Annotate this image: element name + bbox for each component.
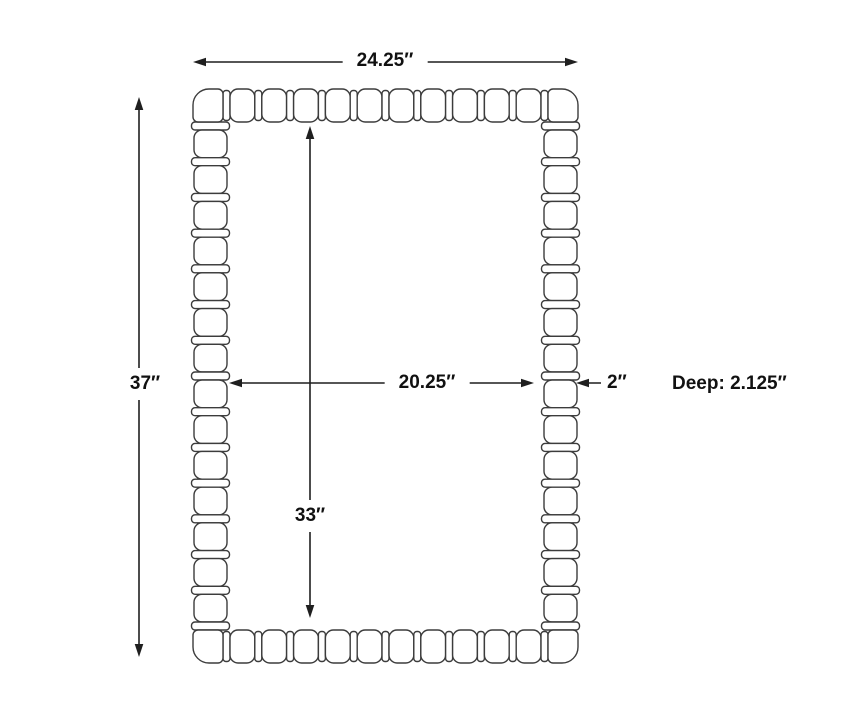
inner-width-dimension-line — [229, 379, 534, 388]
height-dimension-label: 37″ — [116, 368, 174, 400]
diagram-canvas — [0, 0, 860, 711]
frame-thickness-label: 2″ — [604, 371, 630, 395]
frame-thickness-arrow — [576, 379, 601, 388]
inner-height-dimension-label: 33″ — [281, 500, 339, 532]
dimension-diagram: 24.25″ 37″ 20.25″ 33″ 2″ Deep: 2.125″ — [0, 0, 860, 711]
width-dimension-label: 24.25″ — [343, 45, 428, 77]
inner-height-dimension-line — [306, 126, 315, 618]
depth-label: Deep: 2.125″ — [669, 372, 790, 396]
inner-width-dimension-label: 20.25″ — [385, 367, 470, 399]
